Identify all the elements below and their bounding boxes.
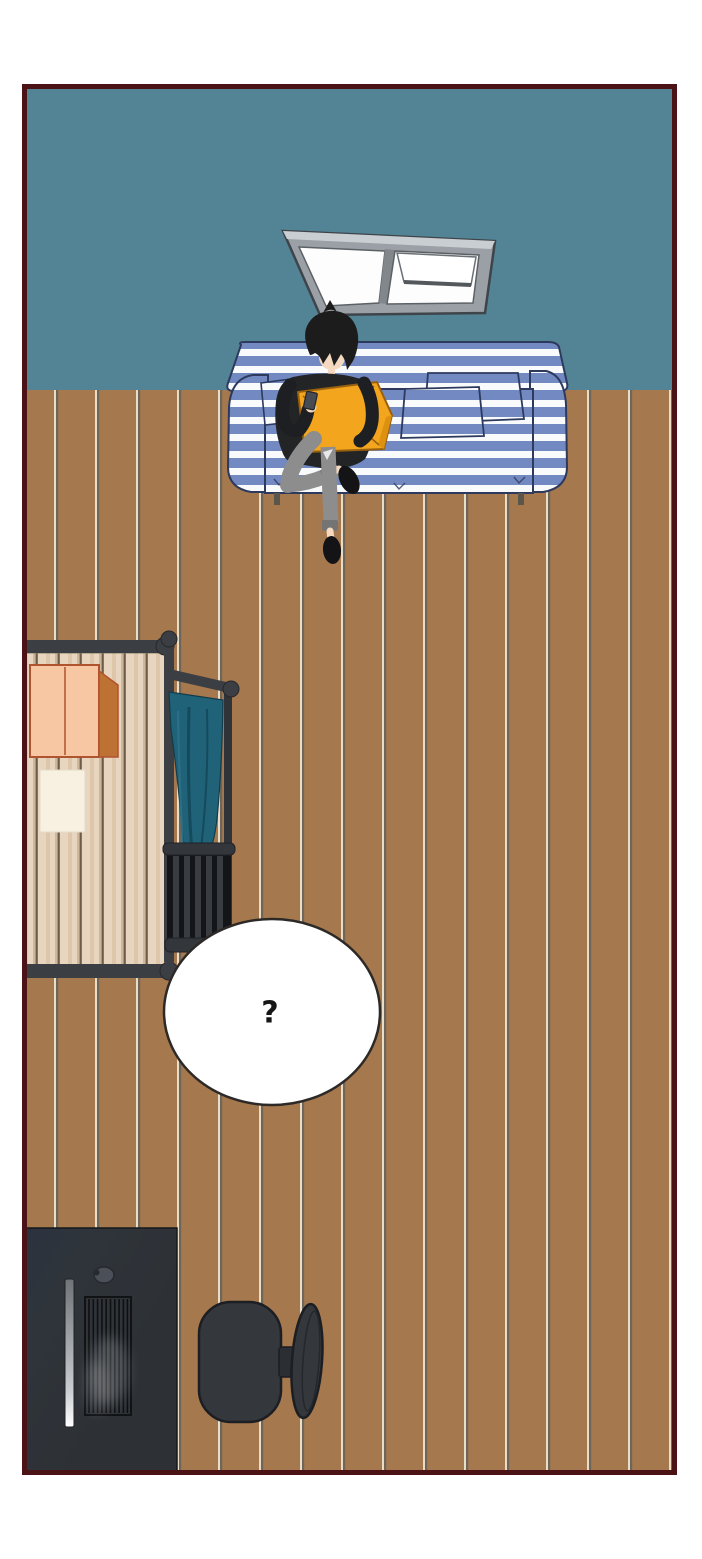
sofa-pillow-front <box>401 387 484 438</box>
table-frame-top <box>27 640 165 653</box>
office-chair-seat <box>199 1302 281 1422</box>
sofa-leg-right <box>518 493 524 505</box>
cardboard-box <box>30 665 118 757</box>
sofa-armrest-right <box>530 371 567 492</box>
leg-hanging <box>328 447 331 523</box>
sheen-2 <box>85 1361 109 1413</box>
tilted-window <box>283 231 495 315</box>
computer-desk <box>27 1228 177 1470</box>
room-panel: ? <box>22 84 677 1475</box>
sofa-leg-left <box>274 493 280 505</box>
chair-slat <box>206 856 212 940</box>
room-scene: ? <box>27 89 672 1470</box>
rack-knob-top <box>161 631 177 647</box>
slatted-wood-table <box>27 637 178 980</box>
chair-slat <box>217 856 223 940</box>
chair-slat <box>195 856 201 940</box>
table-frame-bottom <box>27 964 171 978</box>
chair-slat <box>184 856 190 940</box>
mouse-button <box>94 1270 100 1276</box>
speech-bubble: ? <box>164 919 380 1105</box>
rack-knob-bar <box>223 681 239 697</box>
window-open-sash <box>397 253 476 285</box>
desk-light-bar <box>65 1279 74 1427</box>
office-chair <box>199 1302 326 1422</box>
comic-page: ? <box>0 0 702 1559</box>
chair-bar-top <box>163 843 235 855</box>
question-mark: ? <box>261 996 278 1031</box>
paper-sheet <box>40 770 85 832</box>
chair-slat <box>173 856 179 940</box>
